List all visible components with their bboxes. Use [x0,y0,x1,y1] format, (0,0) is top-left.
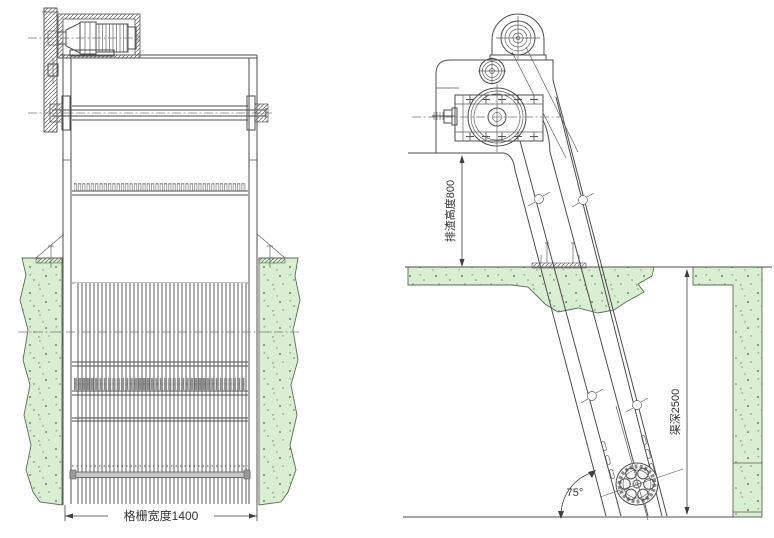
bearing-left-hub [50,104,63,122]
concrete-wall-left [20,234,64,505]
drive-shaft [28,96,272,130]
bottom-tie-bar [70,472,250,478]
rake-teeth-upper [72,183,248,195]
side-motor [490,14,546,60]
front-motor-assembly [28,8,140,132]
idler-sprocket [478,57,506,85]
channel-wall-right [693,267,762,517]
discharge-height-label: 排渣高度800 [443,180,457,242]
concrete-wall-right [257,234,300,505]
grating-width-label: 格栅宽度1400 [124,508,199,523]
channel-depth-dimension: 渠深2500 [669,269,690,515]
side-view: 排渣高度800 渠深2500 75° [403,14,772,520]
channel-depth-label: 渠深2500 [669,389,682,435]
anchor-strip-right [259,258,285,263]
incline-angle-dimension: 75° [558,470,596,519]
discharge-height-dimension: 排渣高度800 [443,155,465,267]
floor-slab [408,267,654,313]
anchor-strip-left [36,258,62,263]
bar-screen-drawing: 格栅宽度1400 [0,0,774,538]
bearing-right-hub [255,104,268,122]
grating-width-dimension: 格栅宽度1400 [65,505,257,523]
front-view: 格栅宽度1400 [18,8,300,523]
technical-drawing-canvas: 格栅宽度1400 [0,0,774,538]
incline-angle-label: 75° [567,487,584,499]
grating-bars [75,283,247,504]
